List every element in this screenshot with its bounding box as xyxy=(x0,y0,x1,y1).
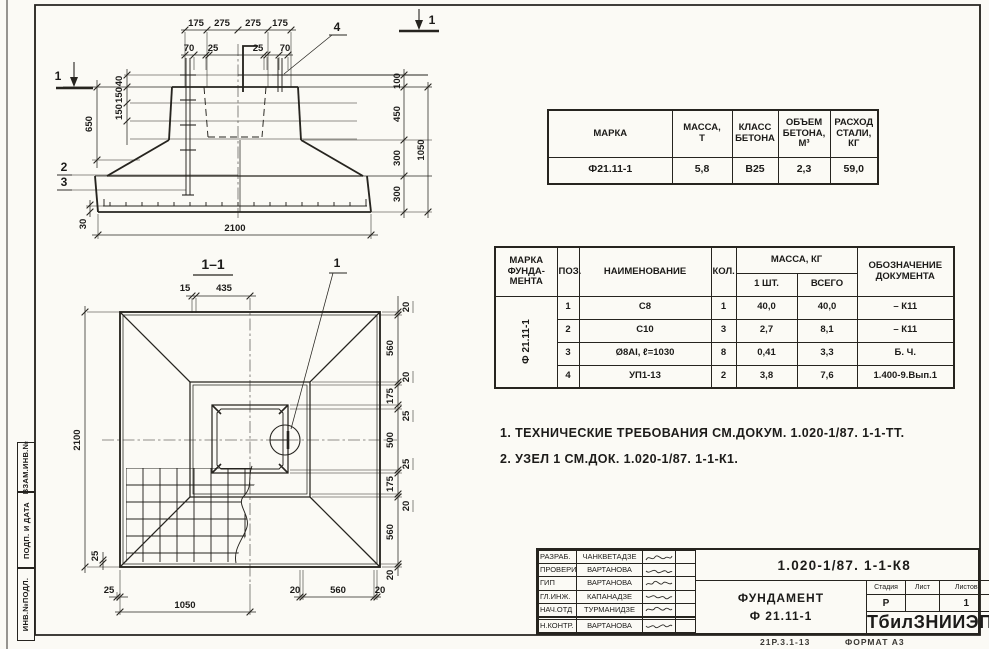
signature-scribble xyxy=(643,577,676,590)
dim-label: 40 xyxy=(114,76,125,87)
dim-label: 20 xyxy=(401,302,412,313)
format-note: ФОРМАТ А3 xyxy=(845,637,905,647)
spec-row-mass-all: 7,6 xyxy=(797,365,857,388)
summary-header-steel: РАСХОД СТАЛИ, КГ xyxy=(830,110,878,157)
dim-label: 25 xyxy=(401,458,412,469)
dim-label: 25 xyxy=(104,585,115,596)
signature-scribble xyxy=(643,590,676,603)
spec-header-mark: МАРКА ФУНДА- МЕНТА xyxy=(495,247,557,296)
summary-header-mass: МАССА, Т xyxy=(672,110,732,157)
dim-label: 275 xyxy=(214,18,231,29)
drawing-title-line1: ФУНДАМЕНТ xyxy=(738,589,824,607)
title-block-main: 1.020-1/87. 1-1-К8 ФУНДАМЕНТ Ф 21.11-1 С… xyxy=(695,550,989,633)
plan-outline xyxy=(102,298,397,582)
spec-row-doc: Б. Ч. xyxy=(857,342,954,365)
section-mark-right: 1 xyxy=(399,9,439,31)
dim-label: 175 xyxy=(272,18,289,29)
spec-row-doc: – К11 xyxy=(857,296,954,319)
spec-row-doc: 1.400-9.Вып.1 xyxy=(857,365,954,388)
summary-table: МАРКА МАССА, Т КЛАСС БЕТОНА ОБЪЕМ БЕТОНА… xyxy=(547,109,879,185)
document-number: 1.020-1/87. 1-1-К8 xyxy=(696,550,989,581)
section-label: 1 xyxy=(55,69,62,83)
dim-label: 15 xyxy=(180,283,191,294)
plan-view: 1–1 xyxy=(72,256,413,615)
dim-label: 175 xyxy=(188,18,205,29)
dim-label: 175 xyxy=(385,387,396,404)
dim-label: 20 xyxy=(290,585,301,596)
margin-label: ВЗАМ.ИНВ.№ xyxy=(22,440,31,493)
date-cell xyxy=(676,564,696,577)
role-label: ГИП xyxy=(539,577,577,590)
spec-header-mass-one: 1 ШТ. xyxy=(736,273,797,296)
dim-label: 20 xyxy=(401,501,412,512)
spec-row-name: УП1-13 xyxy=(579,365,711,388)
blueprint-sheet: 1 1 xyxy=(0,0,989,649)
dim-label: 1050 xyxy=(174,600,195,611)
dim-label: 435 xyxy=(216,283,233,294)
sheet-label: Лист xyxy=(906,581,940,594)
spec-row-pos: 3 xyxy=(557,342,579,365)
spec-header-doc: ОБОЗНАЧЕНИЕ ДОКУМЕНТА xyxy=(857,247,954,296)
spec-row-mass-one: 0,41 xyxy=(736,342,797,365)
margin-box-podp: ПОДП. И ДАТА xyxy=(17,492,35,568)
spec-row-qty: 8 xyxy=(711,342,736,365)
spec-header-mass-all: ВСЕГО xyxy=(797,273,857,296)
title-block-signatures: РАЗРАБ.ЧАНКВЕТАДЗЕ ПРОВЕРИЛВАРТАНОВА ГИП… xyxy=(538,550,695,633)
dim-label: 20 xyxy=(375,585,386,596)
spec-row-name: С10 xyxy=(579,319,711,342)
role-name: ВАРТАНОВА xyxy=(577,577,643,590)
spec-row-pos: 1 xyxy=(557,296,579,319)
dim-label: 560 xyxy=(385,340,396,356)
callout-label: 1 xyxy=(334,256,341,270)
dim-label: 560 xyxy=(385,524,396,540)
title-block: РАЗРАБ.ЧАНКВЕТАДЗЕ ПРОВЕРИЛВАРТАНОВА ГИП… xyxy=(536,548,980,635)
spec-row-qty: 1 xyxy=(711,296,736,319)
spec-mark-value: Ф 21.11-1 xyxy=(521,313,532,372)
role-name: КАПАНАДЗЕ xyxy=(577,590,643,603)
callout-label: 3 xyxy=(61,175,68,189)
role-name: ЧАНКВЕТАДЗЕ xyxy=(577,551,643,564)
summary-header-class: КЛАСС БЕТОНА xyxy=(732,110,778,157)
margin-box-inv: ИНВ.№ПОДЛ. xyxy=(17,568,35,641)
spec-table: МАРКА ФУНДА- МЕНТА ПОЗ. НАИМЕНОВАНИЕ КОЛ… xyxy=(494,246,955,389)
role-label: НАЧ.ОТД xyxy=(539,603,577,616)
spec-row-mass-all: 40,0 xyxy=(797,296,857,319)
elevation-view: 175 275 275 175 70 25 25 70 40 150 150 xyxy=(57,18,432,239)
plan-detail-circle: 1 xyxy=(270,256,347,455)
date-cell xyxy=(676,577,696,590)
signature-scribble xyxy=(643,603,676,616)
role-name: ВАРТАНОВА xyxy=(577,564,643,577)
dim-label: 25 xyxy=(90,550,101,561)
dim-label: 2100 xyxy=(72,429,83,450)
elevation-hidden-cup xyxy=(204,87,266,137)
signature-scribble xyxy=(643,619,676,632)
dim-label: 70 xyxy=(280,43,291,54)
callout-label: 4 xyxy=(334,20,341,34)
organization-name: ТбилЗНИИЭП xyxy=(867,612,989,633)
margin-box-vzam: ВЗАМ.ИНВ.№ xyxy=(17,442,35,492)
sheets-value: 1 xyxy=(940,595,989,611)
role-label: Н.КОНТР. xyxy=(539,619,577,632)
dim-label: 300 xyxy=(392,186,403,202)
spec-header-name: НАИМЕНОВАНИЕ xyxy=(579,247,711,296)
summary-cell-mass: 5,8 xyxy=(672,157,732,184)
section-mark-left: 1 xyxy=(55,62,93,88)
summary-header-mark: МАРКА xyxy=(548,110,672,157)
dim-label: 650 xyxy=(84,116,95,132)
role-name: ВАРТАНОВА xyxy=(577,619,643,632)
drawing-title: ФУНДАМЕНТ Ф 21.11-1 xyxy=(696,581,867,633)
summary-cell-steel: 59,0 xyxy=(830,157,878,184)
dim-label: 175 xyxy=(385,475,396,492)
dim-label: 500 xyxy=(385,432,396,448)
dim-label: 30 xyxy=(78,219,89,230)
spec-header-mass: МАССА, КГ xyxy=(736,247,857,273)
spec-row-pos: 2 xyxy=(557,319,579,342)
margin-label: ИНВ.№ПОДЛ. xyxy=(22,578,31,631)
date-cell xyxy=(676,551,696,564)
spec-row-qty: 2 xyxy=(711,365,736,388)
role-label: ГЛ.ИНЖ. xyxy=(539,590,577,603)
footer-left-note: 21Р.3.1-13 xyxy=(760,637,810,647)
spec-header-pos: ПОЗ. xyxy=(557,247,579,296)
date-cell xyxy=(676,603,696,616)
spec-row-pos: 4 xyxy=(557,365,579,388)
dim-label: 2100 xyxy=(224,223,245,234)
elevation-rebar xyxy=(103,44,367,218)
dim-label: 25 xyxy=(401,410,412,421)
dim-label: 300 xyxy=(392,150,403,166)
technical-note-2: 2. УЗЕЛ 1 СМ.ДОК. 1.020-1/87. 1-1-К1. xyxy=(500,452,738,466)
summary-cell-volume: 2,3 xyxy=(778,157,830,184)
signature-scribble xyxy=(643,551,676,564)
technical-note-1: 1. ТЕХНИЧЕСКИЕ ТРЕБОВАНИЯ СМ.ДОКУМ. 1.02… xyxy=(500,426,904,440)
margin-label: ПОДП. И ДАТА xyxy=(22,501,31,558)
drawing-title-line2: Ф 21.11-1 xyxy=(750,607,813,625)
dim-label: 275 xyxy=(245,18,262,29)
summary-cell-mark: Ф21.11-1 xyxy=(548,157,672,184)
spec-row-name: С8 xyxy=(579,296,711,319)
stage-value: Р xyxy=(867,595,906,611)
spec-mark-cell: Ф 21.11-1 xyxy=(495,296,557,388)
spec-row-mass-one: 40,0 xyxy=(736,296,797,319)
spec-row-mass-all: 8,1 xyxy=(797,319,857,342)
role-label: ПРОВЕРИЛ xyxy=(539,564,577,577)
section-label: 1 xyxy=(429,13,436,27)
dim-label: 450 xyxy=(392,106,403,122)
dim-label: 20 xyxy=(401,372,412,383)
spec-row-qty: 3 xyxy=(711,319,736,342)
role-name: ТУРМАНИДЗЕ xyxy=(577,603,643,616)
signature-scribble xyxy=(643,564,676,577)
spec-header-qty: КОЛ. xyxy=(711,247,736,296)
plan-view-title: 1–1 xyxy=(201,256,225,272)
role-label: РАЗРАБ. xyxy=(539,551,577,564)
dim-label: 150 xyxy=(114,87,125,103)
dim-label: 1050 xyxy=(416,139,427,160)
date-cell xyxy=(676,619,696,632)
stage-sheet-block: Стадия Лист Листов Р 1 ТбилЗНИИЭП xyxy=(867,581,989,633)
callout-label: 2 xyxy=(61,160,68,174)
dim-label: 25 xyxy=(208,43,219,54)
dim-label: 560 xyxy=(330,585,346,596)
dim-label: 100 xyxy=(392,73,403,89)
dim-label: 20 xyxy=(385,570,396,581)
summary-header-volume: ОБЪЕМ БЕТОНА, М³ xyxy=(778,110,830,157)
spec-row-mass-one: 2,7 xyxy=(736,319,797,342)
date-cell xyxy=(676,590,696,603)
sheet-value xyxy=(906,595,940,611)
summary-cell-class: В25 xyxy=(732,157,778,184)
sheets-label: Листов xyxy=(940,581,989,594)
plan-mesh-grid xyxy=(126,466,258,563)
spec-row-name: Ø8АI, ℓ=1030 xyxy=(579,342,711,365)
stage-label: Стадия xyxy=(867,581,906,594)
spec-row-mass-all: 3,3 xyxy=(797,342,857,365)
dim-label: 70 xyxy=(184,43,195,54)
dim-label: 25 xyxy=(253,43,264,54)
dim-label: 150 xyxy=(114,104,125,120)
spec-row-doc: – К11 xyxy=(857,319,954,342)
spec-row-mass-one: 3,8 xyxy=(736,365,797,388)
